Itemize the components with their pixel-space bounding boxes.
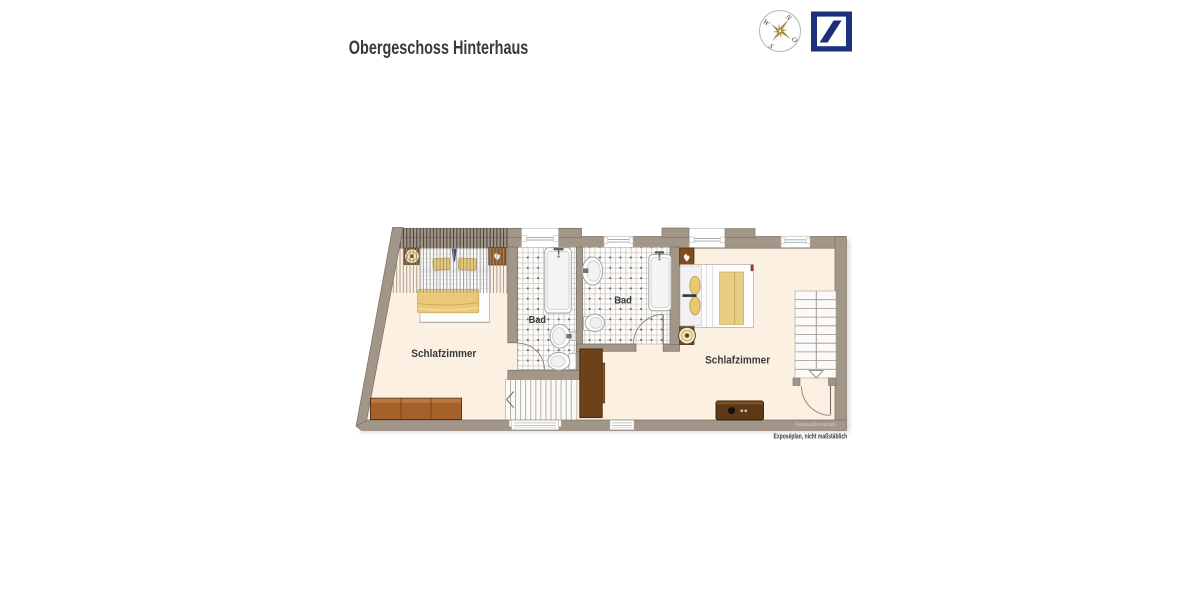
svg-text:Schlafzimmer: Schlafzimmer xyxy=(705,354,771,367)
svg-text:Illustration@ImmoGrafik: Illustration@ImmoGrafik xyxy=(796,422,836,427)
svg-text:Schlafzimmer: Schlafzimmer xyxy=(411,348,477,361)
svg-text:Exposéplan, nicht maßstäblich: Exposéplan, nicht maßstäblich xyxy=(774,433,848,441)
svg-text:Bad: Bad xyxy=(614,295,631,307)
svg-text:Obergeschoss Hinterhaus: Obergeschoss Hinterhaus xyxy=(349,36,528,59)
svg-text:Bad: Bad xyxy=(529,314,546,326)
